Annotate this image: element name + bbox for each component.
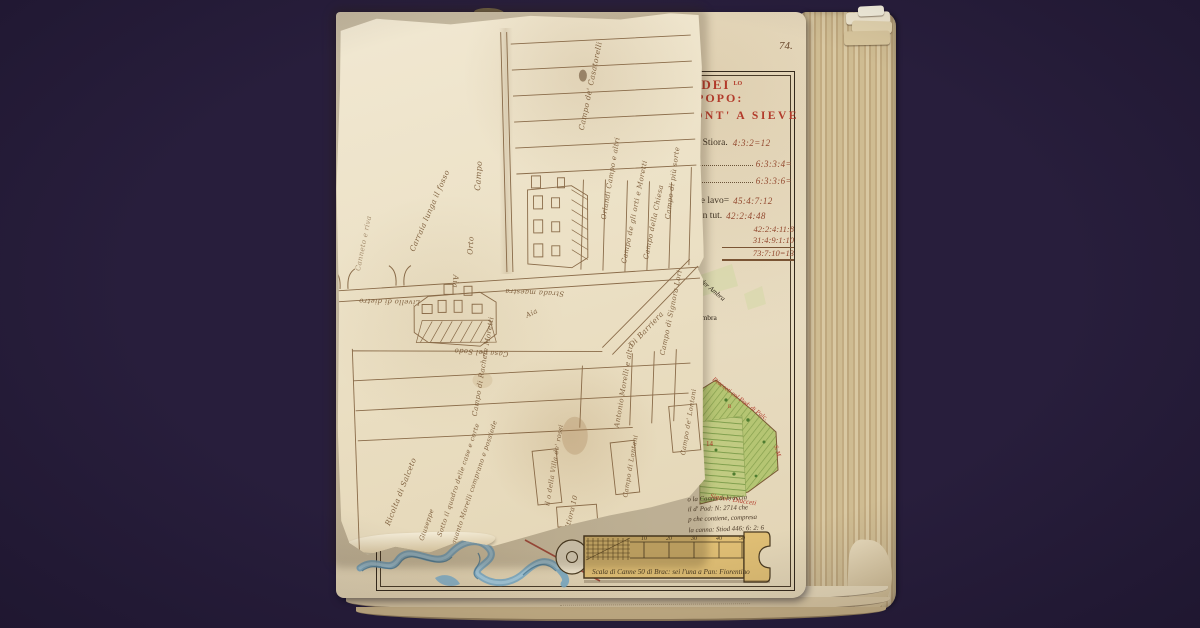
manuscript-photo: 74. O DEILO POPO: PONT' A SIEVE odo Stio… [0,0,1200,628]
lower-strip-lines [352,349,690,441]
measure-value: 6:3:3:4= [756,159,792,169]
bottom-page-edge [356,607,886,621]
ink-stain [579,70,587,82]
paper-stain [562,417,588,455]
measure-value: 45:4:7:12 [733,196,773,206]
green-sliver [744,286,766,310]
page-corner [858,5,884,16]
diagonal-road [602,259,698,355]
handwritten-label: Campo [473,161,484,191]
handwritten-label: Orto [465,236,475,255]
heading-line2: POPO: [696,92,799,105]
scale-caption: Scala di Canne 50 di Brac: sei l'una a P… [592,568,750,576]
measure-value: 42:2:4:48 [726,211,766,221]
building-1 [527,176,587,268]
fold-out-map-sheet: Campo de' Casatorelli Orlandi Campo e al… [331,7,706,565]
page-corner [844,31,890,46]
measure-value: 6:3:3:6= [756,176,792,186]
scale-tick-label: 50 [739,536,745,542]
lower-left-boundary [352,349,359,551]
handwritten-label: Aia [451,275,461,289]
measure-value: 4:3:2=12 [733,138,771,148]
heading-sup: LO [733,81,742,87]
scale-tick-label: 40 [716,535,722,542]
gateposts [333,266,411,289]
sum-line: 42:2:4:11:8 [722,224,794,235]
page-number: 74. [779,40,793,52]
scale-shadow [584,580,770,583]
cadastral-drawing [331,7,706,565]
book-fore-edge-pages [800,12,896,610]
lane-lines [501,32,513,272]
sum-line: 31:4:9:1:10 [722,235,794,247]
upper-strip-lines [511,35,697,174]
